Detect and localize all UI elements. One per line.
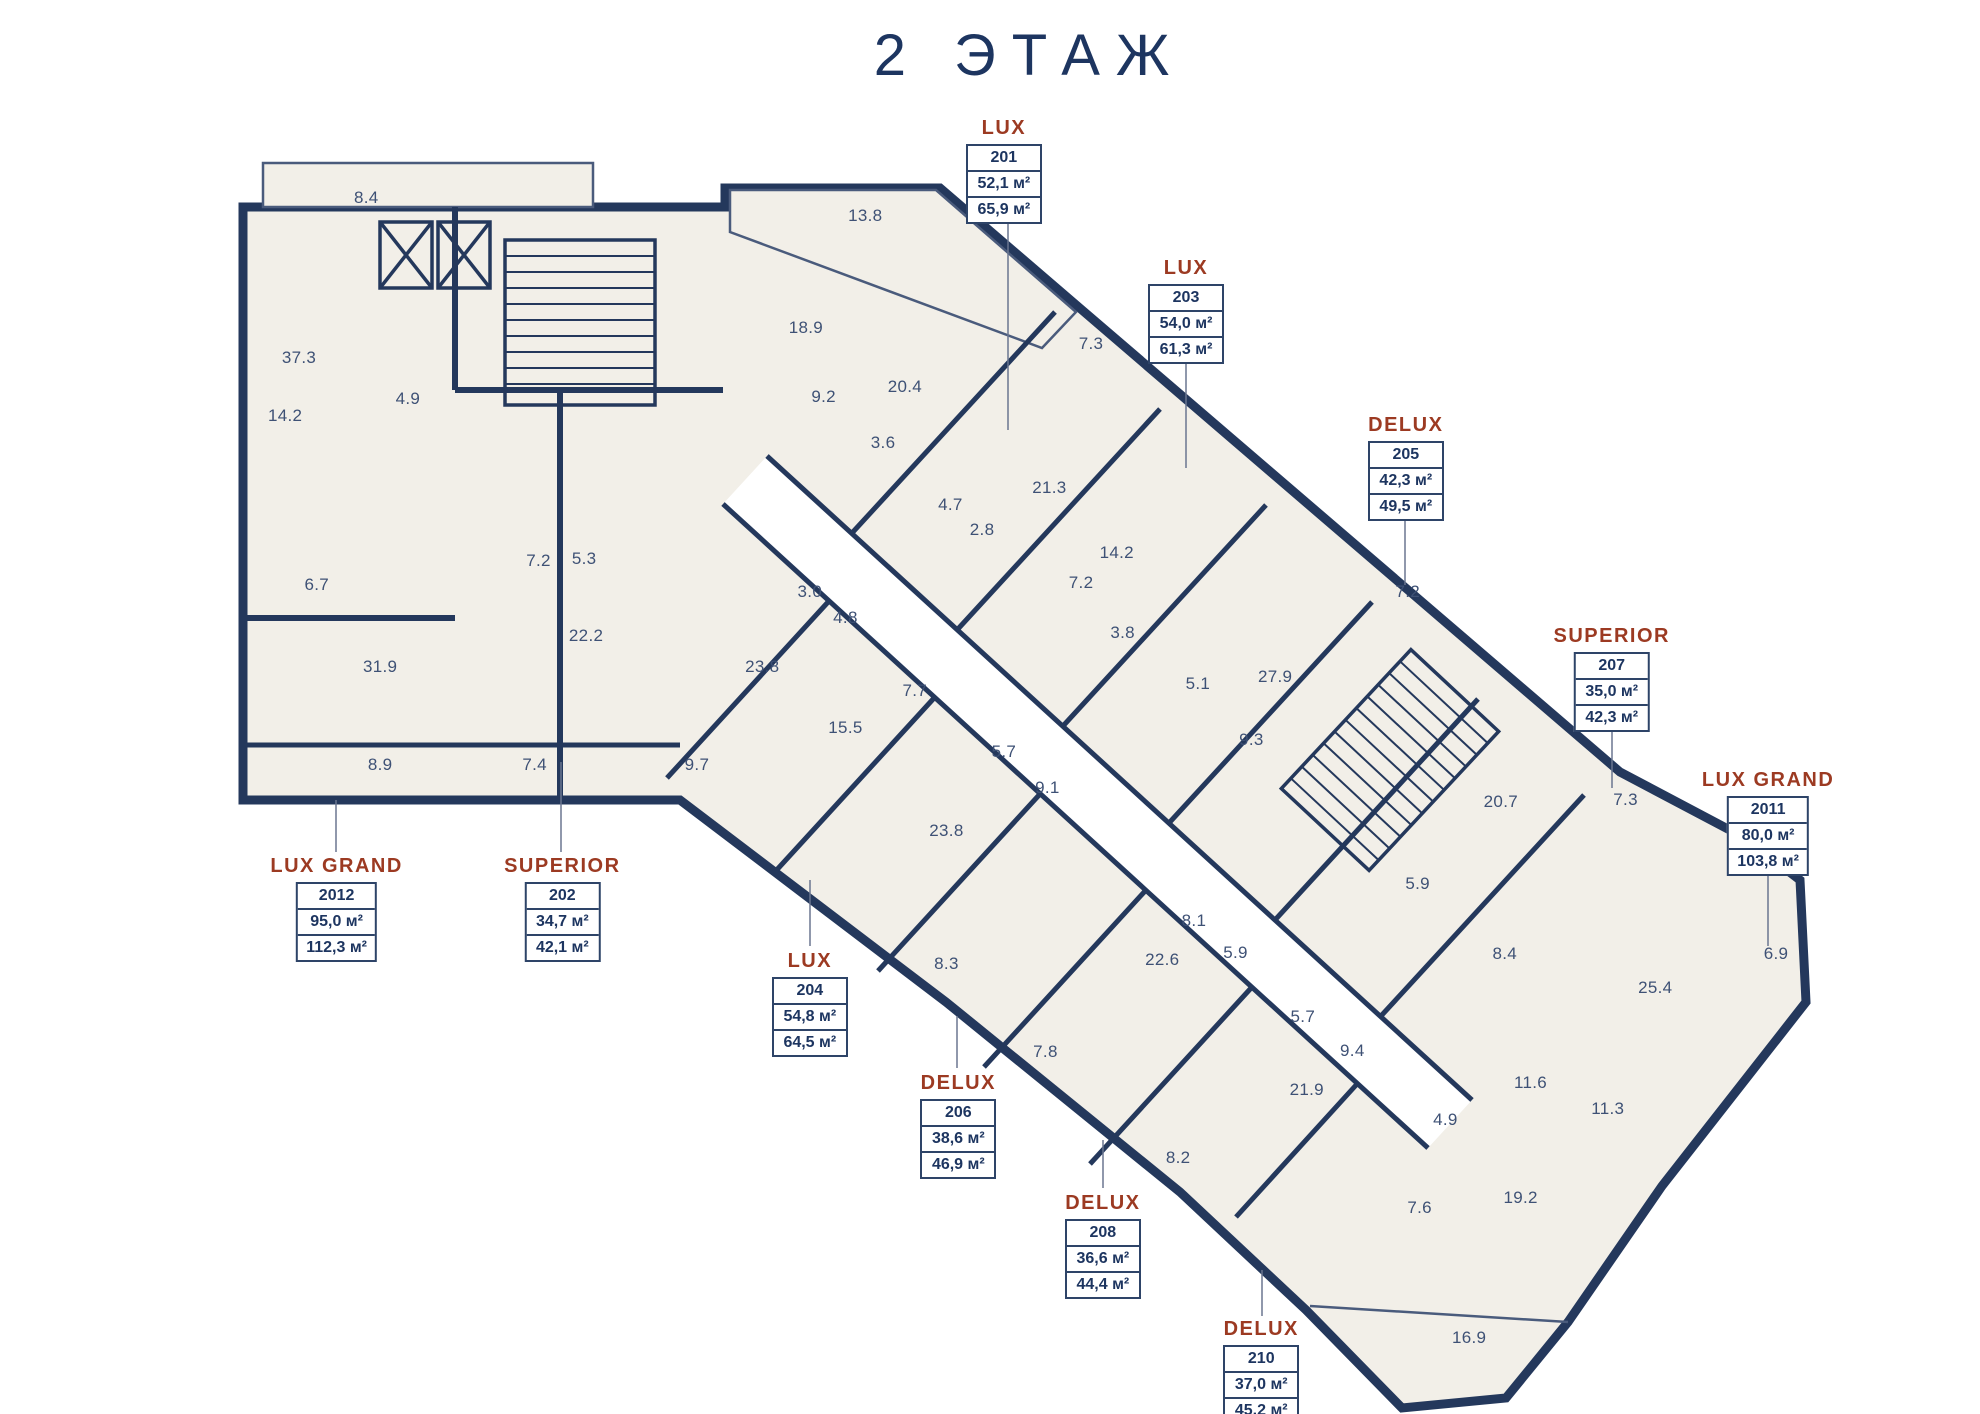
room-area-label: 15.5: [828, 718, 862, 738]
apartment-area-total: 103,8 м²: [1729, 848, 1807, 874]
apartment-area-living: 80,0 м²: [1729, 822, 1807, 848]
room-area-label: 6.9: [1764, 944, 1789, 964]
apartment-type: SUPERIOR: [1553, 625, 1669, 648]
apartment-area-total: 44,4 м²: [1067, 1271, 1139, 1297]
apartment-unit: 206: [922, 1101, 994, 1125]
apartment-label: LUX20454,8 м²64,5 м²: [772, 950, 848, 1057]
room-area-label: 21.3: [1032, 478, 1066, 498]
apartment-info-box: 20836,6 м²44,4 м²: [1065, 1219, 1141, 1299]
room-area-label: 5.7: [992, 742, 1017, 762]
room-area-label: 20.4: [888, 377, 922, 397]
room-area-label: 8.4: [1493, 944, 1518, 964]
apartment-label: SUPERIOR20735,0 м²42,3 м²: [1553, 625, 1669, 732]
apartment-area-living: 35,0 м²: [1576, 678, 1648, 704]
apartment-area-living: 54,0 м²: [1150, 310, 1222, 336]
apartment-type: LUX: [772, 950, 848, 973]
room-area-label: 14.2: [1100, 543, 1134, 563]
apartment-info-box: 21037,0 м²45,2 м²: [1223, 1345, 1299, 1414]
apartment-unit: 205: [1370, 443, 1442, 467]
room-area-label: 19.2: [1503, 1188, 1537, 1208]
room-area-label: 11.3: [1591, 1099, 1624, 1119]
apartment-area-total: 42,3 м²: [1576, 704, 1648, 730]
room-area-label: 14.2: [268, 406, 302, 426]
apartment-type: LUX: [966, 117, 1042, 140]
apartment-label: DELUX20542,3 м²49,5 м²: [1368, 414, 1444, 521]
apartment-unit: 203: [1150, 286, 1222, 310]
room-area-label: 3.6: [871, 433, 896, 453]
room-area-label: 31.9: [363, 657, 397, 677]
page-title: 2 ЭТАЖ: [874, 22, 1186, 89]
room-area-label: 7.8: [1033, 1042, 1058, 1062]
room-area-label: 5.7: [1291, 1007, 1316, 1027]
apartment-area-total: 112,3 м²: [298, 934, 375, 960]
room-area-label: 8.4: [354, 188, 379, 208]
room-area-label: 8.9: [368, 755, 393, 775]
floorplan-canvas: 2 ЭТАЖ: [0, 0, 1980, 1414]
apartment-unit: 2011: [1729, 798, 1807, 822]
apartment-type: LUX GRAND: [270, 855, 402, 878]
room-area-label: 3.0: [798, 582, 823, 602]
apartment-type: SUPERIOR: [504, 855, 620, 878]
room-area-label: 16.9: [1452, 1328, 1486, 1348]
room-area-label: 13.8: [848, 206, 882, 226]
apartment-area-living: 34,7 м²: [526, 908, 598, 934]
balcony: [263, 163, 593, 207]
apartment-info-box: 20542,3 м²49,5 м²: [1368, 441, 1444, 521]
room-area-label: 7.3: [1079, 334, 1104, 354]
apartment-type: LUX GRAND: [1702, 769, 1834, 792]
apartment-area-total: 45,2 м²: [1225, 1397, 1297, 1414]
apartment-area-total: 46,9 м²: [922, 1151, 994, 1177]
room-area-label: 21.9: [1290, 1080, 1324, 1100]
room-area-label: 7.2: [1069, 573, 1094, 593]
room-area-label: 11.6: [1514, 1073, 1547, 1093]
apartment-area-living: 37,0 м²: [1225, 1371, 1297, 1397]
apartment-area-living: 52,1 м²: [968, 170, 1040, 196]
apartment-area-total: 65,9 м²: [968, 196, 1040, 222]
apartment-info-box: 201180,0 м²103,8 м²: [1727, 796, 1809, 876]
apartment-area-total: 49,5 м²: [1370, 493, 1442, 519]
apartment-info-box: 20354,0 м²61,3 м²: [1148, 284, 1224, 364]
room-area-label: 5.1: [1186, 674, 1211, 694]
apartment-area-total: 61,3 м²: [1150, 336, 1222, 362]
room-area-label: 5.9: [1405, 874, 1430, 894]
room-area-label: 5.9: [1223, 943, 1248, 963]
room-area-label: 4.9: [396, 389, 421, 409]
apartment-type: LUX: [1148, 257, 1224, 280]
apartment-label: SUPERIOR20234,7 м²42,1 м²: [504, 855, 620, 962]
apartment-type: DELUX: [1065, 1192, 1141, 1215]
room-area-label: 9.1: [1035, 778, 1060, 798]
apartment-type: DELUX: [1368, 414, 1444, 437]
room-area-label: 7.2: [526, 551, 551, 571]
room-area-label: 8.2: [1166, 1148, 1191, 1168]
room-area-label: 37.3: [282, 348, 316, 368]
apartment-type: DELUX: [1223, 1318, 1299, 1341]
apartment-area-total: 64,5 м²: [774, 1029, 846, 1055]
apartment-area-living: 95,0 м²: [298, 908, 375, 934]
apartment-info-box: 20735,0 м²42,3 м²: [1574, 652, 1650, 732]
apartment-info-box: 20454,8 м²64,5 м²: [772, 977, 848, 1057]
room-area-label: 8.3: [934, 954, 959, 974]
apartment-unit: 207: [1576, 654, 1648, 678]
building-outline: [243, 188, 1806, 1408]
room-area-label: 7.2: [1395, 582, 1420, 602]
apartment-unit: 201: [968, 146, 1040, 170]
room-area-label: 4.9: [1433, 1110, 1458, 1130]
apartment-label: LUX20354,0 м²61,3 м²: [1148, 257, 1224, 364]
apartment-area-living: 38,6 м²: [922, 1125, 994, 1151]
apartment-info-box: 20638,6 м²46,9 м²: [920, 1099, 996, 1179]
apartment-unit: 204: [774, 979, 846, 1003]
apartment-unit: 202: [526, 884, 598, 908]
apartment-label: DELUX21037,0 м²45,2 м²: [1223, 1318, 1299, 1414]
apartment-unit: 208: [1067, 1221, 1139, 1245]
room-area-label: 8.1: [1182, 911, 1207, 931]
apartment-info-box: 20152,1 м²65,9 м²: [966, 144, 1042, 224]
apartment-area-living: 42,3 м²: [1370, 467, 1442, 493]
apartment-label: LUX20152,1 м²65,9 м²: [966, 117, 1042, 224]
room-area-label: 4.8: [833, 608, 858, 628]
room-area-label: 9.3: [1239, 730, 1264, 750]
room-area-label: 9.2: [811, 387, 836, 407]
room-area-label: 4.7: [938, 495, 963, 515]
room-area-label: 22.6: [1145, 950, 1179, 970]
apartment-label: LUX GRAND201295,0 м²112,3 м²: [270, 855, 402, 962]
room-area-label: 3.8: [1110, 623, 1135, 643]
room-area-label: 2.8: [970, 520, 995, 540]
apartment-unit: 2012: [298, 884, 375, 908]
room-area-label: 6.7: [305, 575, 330, 595]
apartment-type: DELUX: [920, 1072, 996, 1095]
room-area-label: 22.2: [569, 626, 603, 646]
apartment-unit: 210: [1225, 1347, 1297, 1371]
apartment-label: DELUX20638,6 м²46,9 м²: [920, 1072, 996, 1179]
apartment-label: DELUX20836,6 м²44,4 м²: [1065, 1192, 1141, 1299]
room-area-label: 9.7: [685, 755, 710, 775]
room-area-label: 5.3: [572, 549, 597, 569]
apartment-info-box: 201295,0 м²112,3 м²: [296, 882, 377, 962]
room-area-label: 7.4: [522, 755, 547, 775]
room-area-label: 7.3: [1613, 790, 1638, 810]
apartment-area-living: 54,8 м²: [774, 1003, 846, 1029]
apartment-area-living: 36,6 м²: [1067, 1245, 1139, 1271]
room-area-label: 20.7: [1484, 792, 1518, 812]
room-area-label: 7.7: [902, 681, 927, 701]
apartment-label: LUX GRAND201180,0 м²103,8 м²: [1702, 769, 1834, 876]
room-area-label: 23.8: [745, 657, 779, 677]
room-area-label: 23.8: [929, 821, 963, 841]
room-area-label: 7.6: [1407, 1198, 1432, 1218]
room-area-label: 27.9: [1258, 667, 1292, 687]
room-area-label: 9.4: [1340, 1041, 1365, 1061]
room-area-label: 18.9: [789, 318, 823, 338]
room-area-label: 25.4: [1638, 978, 1672, 998]
apartment-area-total: 42,1 м²: [526, 934, 598, 960]
apartment-info-box: 20234,7 м²42,1 м²: [524, 882, 600, 962]
